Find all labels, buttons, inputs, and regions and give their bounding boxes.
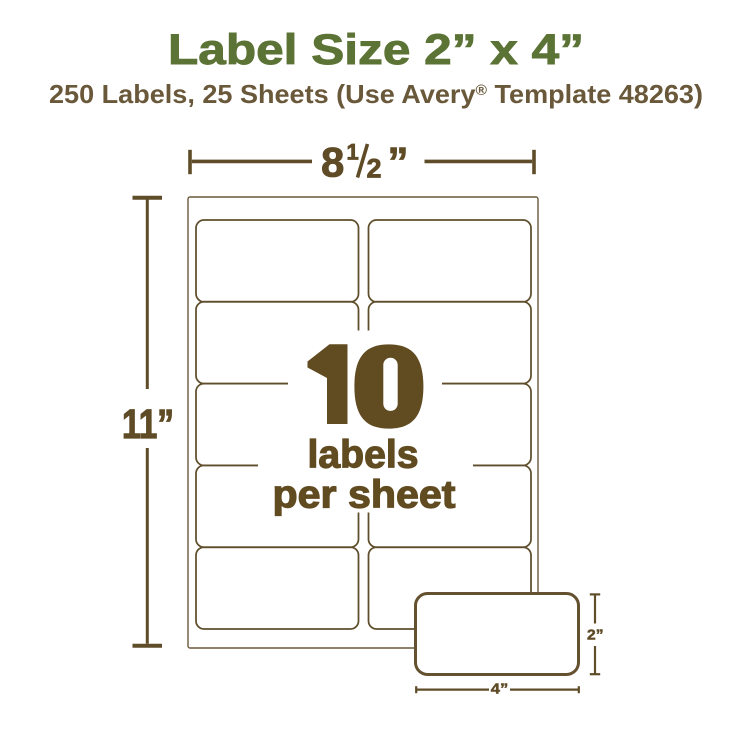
svg-text:11”: 11” (122, 401, 174, 447)
svg-text:8: 8 (321, 139, 344, 186)
svg-text:2: 2 (367, 154, 382, 184)
svg-text:”: ” (388, 139, 409, 186)
svg-text:Label Size 2” x 4”: Label Size 2” x 4” (168, 26, 584, 74)
svg-text:4”: 4” (491, 681, 509, 698)
svg-text:labels: labels (308, 434, 419, 477)
svg-text:per sheet: per sheet (273, 474, 456, 517)
svg-text:1: 1 (347, 140, 359, 165)
svg-text:2”: 2” (587, 627, 604, 644)
svg-text:250 Labels, 25 Sheets (Use Ave: 250 Labels, 25 Sheets (Use Avery® Templa… (49, 79, 703, 109)
